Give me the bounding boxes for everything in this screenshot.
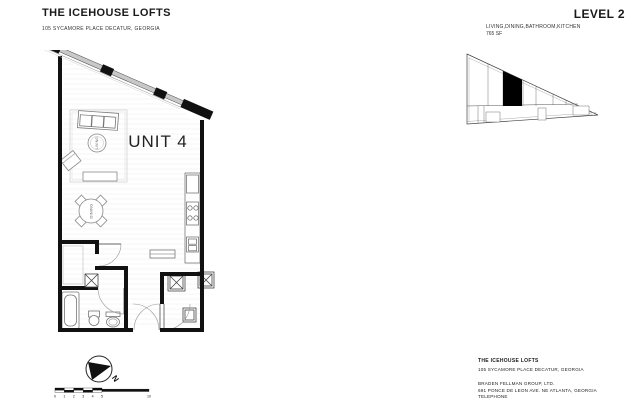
dining-label: DINING — [89, 203, 93, 218]
drawing-sheet: THE ICEHOUSE LOFTS 105 SYCAMORE PLACE DE… — [0, 0, 640, 415]
level-header: LEVEL 2 LIVING,DINING,BATHROOM,KITCHEN 7… — [486, 7, 625, 37]
north-arrow-pointer — [88, 362, 111, 380]
stove — [187, 202, 199, 225]
kitchen-counter — [150, 173, 200, 263]
title-block-company: BRADEN FELLMAN GROUP, LTD. — [478, 381, 633, 386]
toilet — [106, 312, 120, 327]
project-header: THE ICEHOUSE LOFTS 105 SYCAMORE PLACE DE… — [42, 7, 171, 32]
coffee-table — [83, 172, 117, 181]
level-rooms: LIVING,DINING,BATHROOM,KITCHEN — [486, 24, 625, 30]
closet-shelf — [63, 246, 83, 284]
bathroom-sink — [89, 311, 100, 326]
scale-bar: 0 1 2 3 4 5 10 — [50, 386, 155, 402]
level-area: 765 SF — [486, 31, 625, 37]
shaft-box-closet — [85, 274, 98, 287]
title-block: THE ICEHOUSE LOFTS 105 SYCAMORE PLACE DE… — [478, 358, 633, 399]
unit-highlight — [503, 71, 522, 106]
closet-door — [99, 244, 121, 266]
title-block-phone: TELEPHONE — [478, 394, 633, 399]
project-title: THE ICEHOUSE LOFTS — [42, 7, 171, 19]
title-block-project: THE ICEHOUSE LOFTS — [478, 358, 633, 364]
title-block-project-address: 105 SYCAMORE PLACE DECATUR, GEORGIA — [478, 367, 633, 372]
kitchen-bar — [150, 250, 175, 258]
scale-tick: 5 — [101, 395, 103, 399]
mechanical-room-equipment — [168, 272, 214, 322]
north-label: N — [110, 374, 121, 384]
shaft-box-inside — [168, 274, 185, 291]
refrigerator — [187, 175, 199, 193]
unit-label: UNIT 4 — [128, 132, 188, 151]
scale-tick: 2 — [73, 395, 75, 399]
unit-floor-plan: LIVING DINING — [40, 50, 235, 345]
scale-tick: 0 — [54, 395, 56, 399]
key-plan — [458, 50, 606, 132]
kitchen-sink — [187, 237, 199, 252]
scale-tick: 1 — [63, 395, 65, 399]
window-mullions — [40, 50, 213, 120]
title-block-company-address: 691 PONCE DE LEON AVE. NE ATLANTA, GEORG… — [478, 388, 633, 393]
bathroom-door — [98, 288, 124, 314]
bathtub — [62, 292, 79, 329]
scale-tick-end: 10 — [147, 395, 151, 399]
living-table: LIVING — [88, 134, 106, 152]
scale-tick: 4 — [92, 395, 94, 399]
accent-chair — [60, 151, 81, 171]
project-address: 105 SYCAMORE PLACE DECATUR, GEORGIA — [42, 26, 171, 32]
level-title: LEVEL 2 — [486, 7, 625, 21]
scale-tick: 3 — [82, 395, 84, 399]
sofa — [77, 111, 118, 131]
entry-door — [133, 304, 160, 330]
living-label: LIVING — [95, 137, 99, 149]
